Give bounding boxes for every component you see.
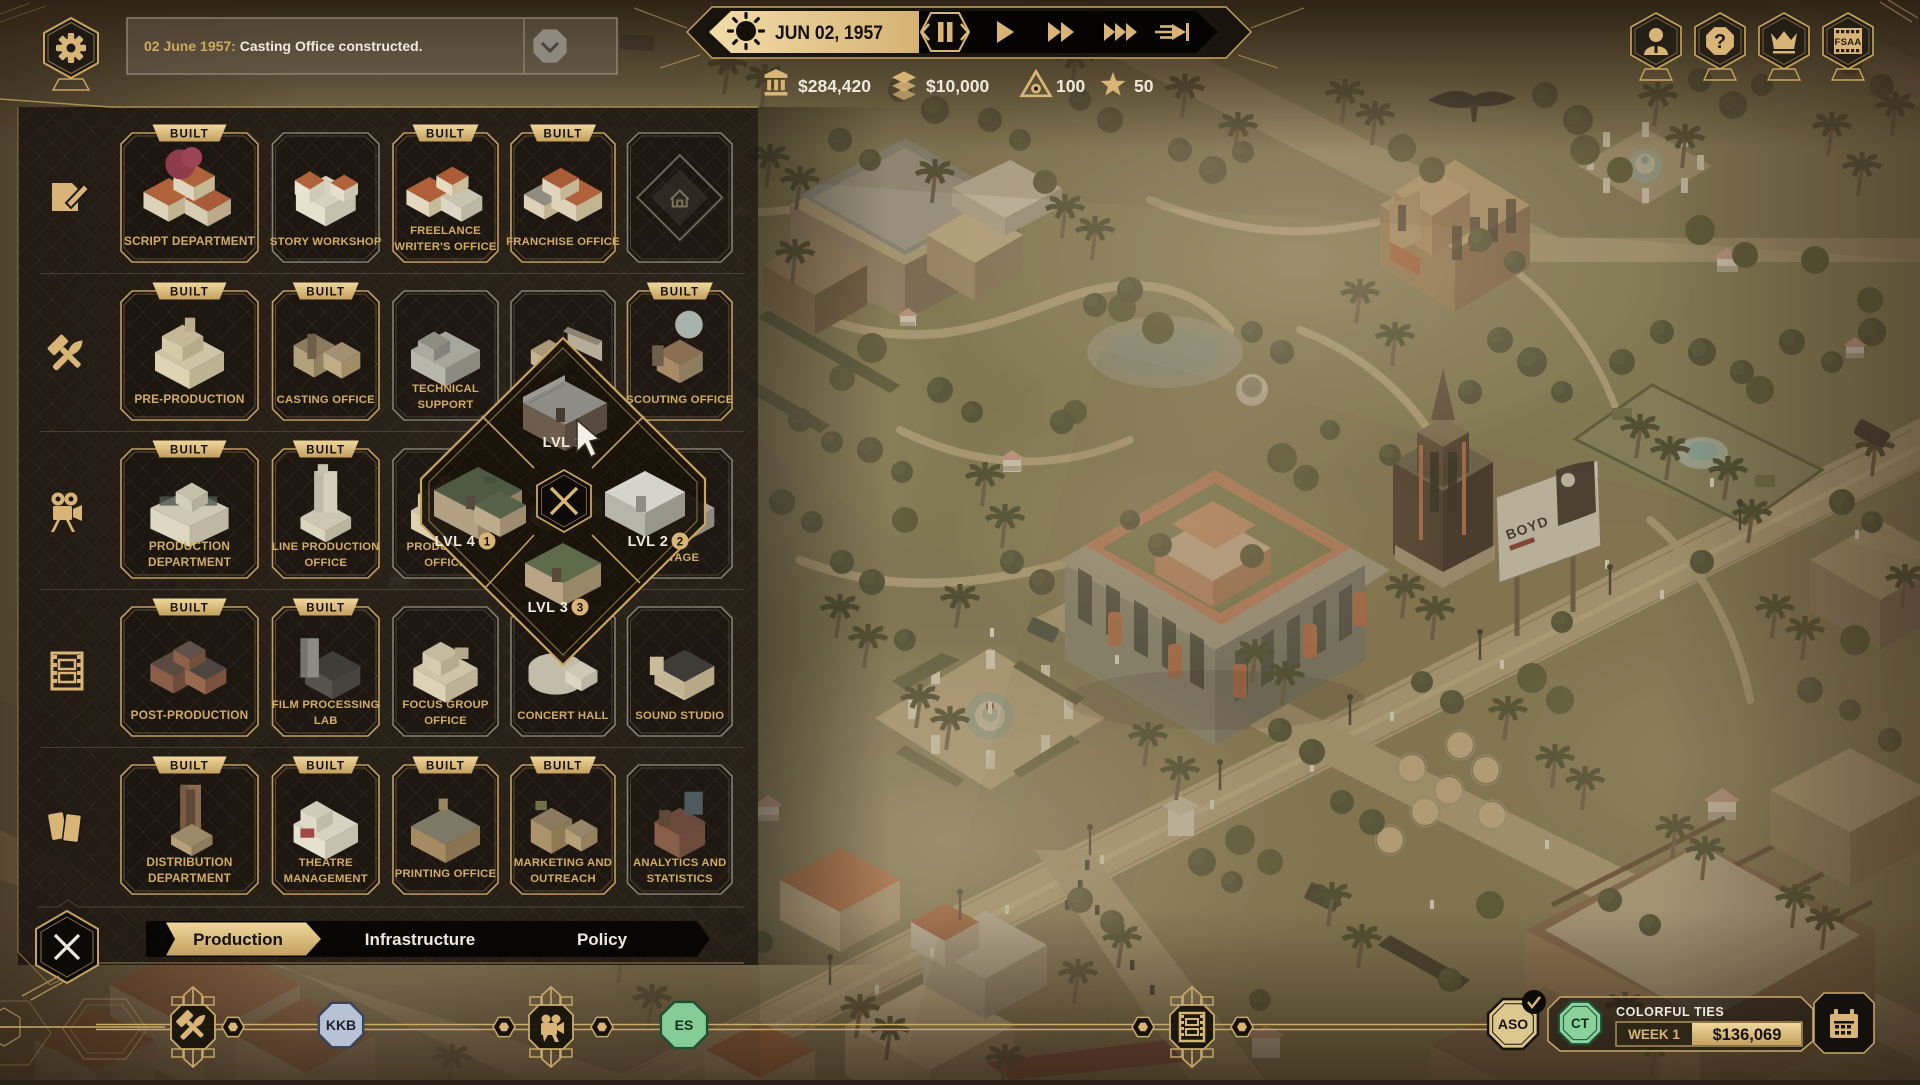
svg-text:KKB: KKB — [326, 1017, 356, 1033]
svg-text:SOUND STUDIO: SOUND STUDIO — [635, 710, 724, 722]
svg-text:ES: ES — [675, 1017, 694, 1033]
svg-text:WEEK 1: WEEK 1 — [1628, 1027, 1680, 1042]
svg-text:PRE-PRODUCTION: PRE-PRODUCTION — [134, 392, 244, 406]
svg-text:BUILT: BUILT — [170, 761, 209, 773]
svg-text:Infrastructure: Infrastructure — [365, 930, 476, 949]
svg-text:FILM PROCESSING: FILM PROCESSING — [272, 699, 380, 711]
svg-text:LVL 2: LVL 2 — [628, 534, 669, 550]
svg-text:Policy: Policy — [577, 930, 628, 949]
svg-text:BUILT: BUILT — [543, 129, 582, 141]
svg-text:FSAA: FSAA — [1834, 37, 1861, 48]
svg-text:THEATRE: THEATRE — [299, 857, 353, 869]
svg-text:BUILT: BUILT — [426, 129, 465, 141]
svg-text:1: 1 — [484, 537, 491, 549]
svg-text:$136,069: $136,069 — [1713, 1026, 1782, 1044]
svg-text:POST-PRODUCTION: POST-PRODUCTION — [131, 708, 249, 722]
svg-text:OFFICE: OFFICE — [424, 715, 467, 727]
svg-text:DEPARTMENT: DEPARTMENT — [148, 555, 232, 569]
svg-text:CONCERT HALL: CONCERT HALL — [517, 710, 609, 722]
svg-text:STATISTICS: STATISTICS — [647, 873, 713, 885]
svg-text:TECHNICAL: TECHNICAL — [412, 383, 479, 395]
svg-text:MARKETING AND: MARKETING AND — [514, 857, 612, 869]
svg-text:LVL 4: LVL 4 — [435, 534, 476, 550]
svg-text:02 June 1957: Casting Office c: 02 June 1957: Casting Office constructed… — [144, 38, 423, 54]
svg-text:?: ? — [1714, 31, 1726, 53]
svg-text:LINE PRODUCTION: LINE PRODUCTION — [272, 541, 380, 553]
svg-text:BUILT: BUILT — [306, 445, 345, 457]
svg-text:PRINTING OFFICE: PRINTING OFFICE — [395, 868, 497, 880]
svg-text:SCRIPT DEPARTMENT: SCRIPT DEPARTMENT — [124, 234, 256, 248]
svg-text:OUTREACH: OUTREACH — [530, 873, 596, 885]
svg-text:50: 50 — [1134, 76, 1154, 96]
svg-text:BUILT: BUILT — [306, 761, 345, 773]
svg-text:BUILT: BUILT — [170, 445, 209, 457]
svg-text:FRANCHISE OFFICE: FRANCHISE OFFICE — [506, 236, 620, 248]
svg-text:ASO: ASO — [1498, 1016, 1528, 1032]
svg-text:BUILT: BUILT — [543, 761, 582, 773]
svg-text:BUILT: BUILT — [170, 287, 209, 299]
svg-text:OFFICE: OFFICE — [304, 557, 347, 569]
svg-text:$10,000: $10,000 — [926, 76, 990, 96]
svg-text:BUILT: BUILT — [170, 129, 209, 141]
svg-text:BUILT: BUILT — [306, 287, 345, 299]
svg-text:COLORFUL TIES: COLORFUL TIES — [1616, 1005, 1724, 1019]
svg-text:DISTRIBUTION: DISTRIBUTION — [146, 855, 232, 869]
svg-text:DEPARTMENT: DEPARTMENT — [148, 871, 232, 885]
svg-text:PRODUCTION: PRODUCTION — [149, 539, 230, 553]
svg-text:BUILT: BUILT — [660, 287, 699, 299]
svg-text:MANAGEMENT: MANAGEMENT — [284, 873, 368, 885]
svg-text:BUILT: BUILT — [426, 761, 465, 773]
svg-text:SCOUTING OFFICE: SCOUTING OFFICE — [626, 394, 733, 406]
svg-text:3: 3 — [577, 603, 583, 615]
svg-text:FOCUS GROUP: FOCUS GROUP — [402, 699, 489, 711]
svg-text:BUILT: BUILT — [170, 603, 209, 615]
svg-text:$284,420: $284,420 — [798, 76, 871, 96]
svg-text:SUPPORT: SUPPORT — [417, 399, 473, 411]
svg-text:100: 100 — [1056, 76, 1085, 96]
svg-text:CT: CT — [1571, 1016, 1590, 1031]
svg-text:Production: Production — [193, 930, 283, 949]
svg-text:JUN 02, 1957: JUN 02, 1957 — [775, 22, 883, 44]
svg-text:2: 2 — [677, 537, 683, 549]
svg-text:CASTING OFFICE: CASTING OFFICE — [277, 394, 375, 406]
svg-text:LAB: LAB — [314, 715, 338, 727]
svg-text:LVL 3: LVL 3 — [528, 600, 569, 616]
svg-text:ANALYTICS AND: ANALYTICS AND — [633, 857, 726, 869]
svg-text:BUILT: BUILT — [306, 603, 345, 615]
svg-text:FREELANCE: FREELANCE — [410, 225, 481, 237]
svg-text:WRITER'S OFFICE: WRITER'S OFFICE — [394, 241, 497, 253]
svg-text:STORY WORKSHOP: STORY WORKSHOP — [270, 236, 382, 248]
